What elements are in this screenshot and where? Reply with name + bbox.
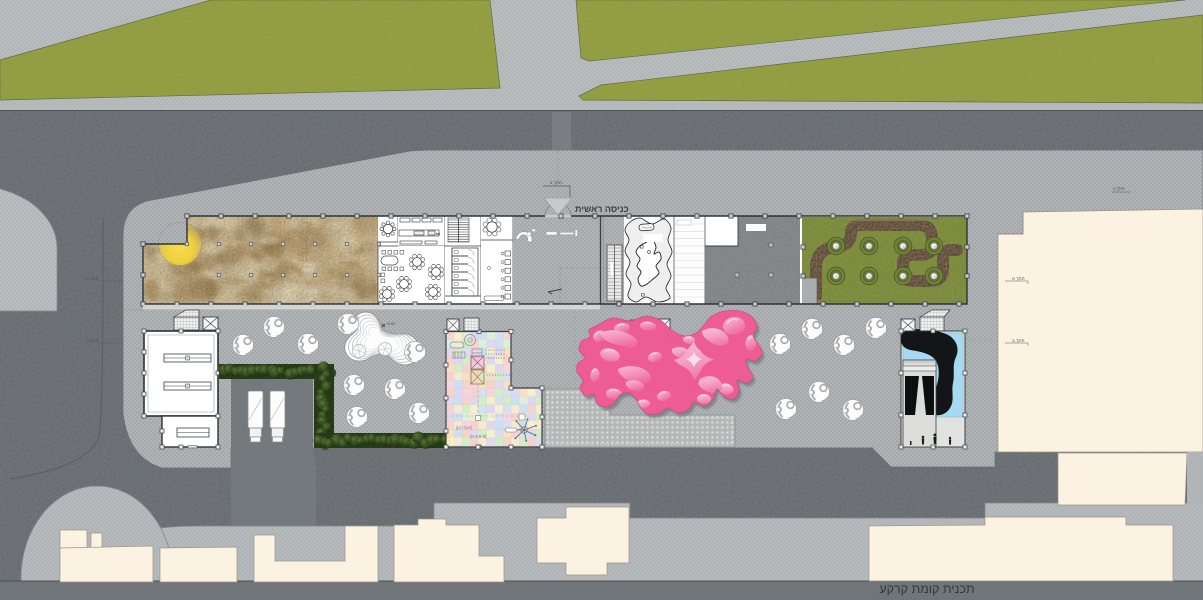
svg-text:חתך ב: חתך ב: [1012, 338, 1024, 343]
svg-text:חתך ב: חתך ב: [86, 338, 98, 343]
svg-text:חתך א: חתך א: [86, 276, 99, 281]
svg-text:תכנית קומת קרקע: תכנית קומת קרקע: [879, 582, 974, 596]
svg-text:|אגף הגן|: |אגף הגן|: [456, 425, 472, 430]
svg-text:חתך ב: חתך ב: [550, 180, 562, 185]
svg-text:חתך א: חתך א: [1012, 276, 1025, 281]
svg-text:כניסה ראשית: כניסה ראשית: [575, 204, 629, 214]
svg-text:+0.00: +0.00: [386, 322, 395, 326]
svg-text:(0-3-6-9): (0-3-6-9): [470, 434, 487, 439]
svg-text:חתך ג: חתך ג: [1113, 186, 1125, 191]
